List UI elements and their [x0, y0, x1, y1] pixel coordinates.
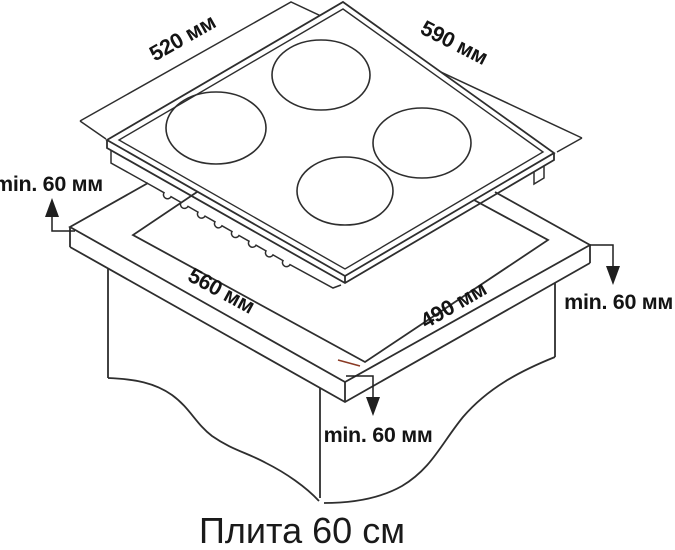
diagram-caption: Плита 60 см: [199, 510, 405, 550]
hob-width-label: 520 мм: [145, 10, 219, 66]
dim-min-front: min. 60 мм: [324, 376, 433, 447]
cutout-width-label: 560 мм: [184, 263, 259, 318]
min-clearance-right-label: min. 60 мм: [564, 290, 673, 314]
arrow-down-icon: [606, 266, 620, 285]
red-highlight-segment: [338, 360, 360, 366]
dim-min-right-leader: [590, 245, 613, 266]
min-clearance-left-label: min. 60 мм: [0, 172, 103, 196]
min-clearance-front-label: min. 60 мм: [324, 423, 433, 447]
cabinet-break-line-left: [108, 378, 319, 501]
arrow-up-icon: [45, 198, 59, 217]
dim-min-left: min. 60 мм: [0, 172, 103, 231]
hob-depth-label: 590 мм: [417, 16, 492, 70]
cabinet: [108, 268, 555, 503]
dim-min-right: min. 60 мм: [564, 245, 673, 314]
arrow-down-icon: [366, 397, 380, 416]
page: min. 60 мм min. 60 мм min. 60 мм 520 мм …: [0, 0, 675, 550]
installation-diagram: min. 60 мм min. 60 мм min. 60 мм 520 мм …: [0, 0, 675, 550]
